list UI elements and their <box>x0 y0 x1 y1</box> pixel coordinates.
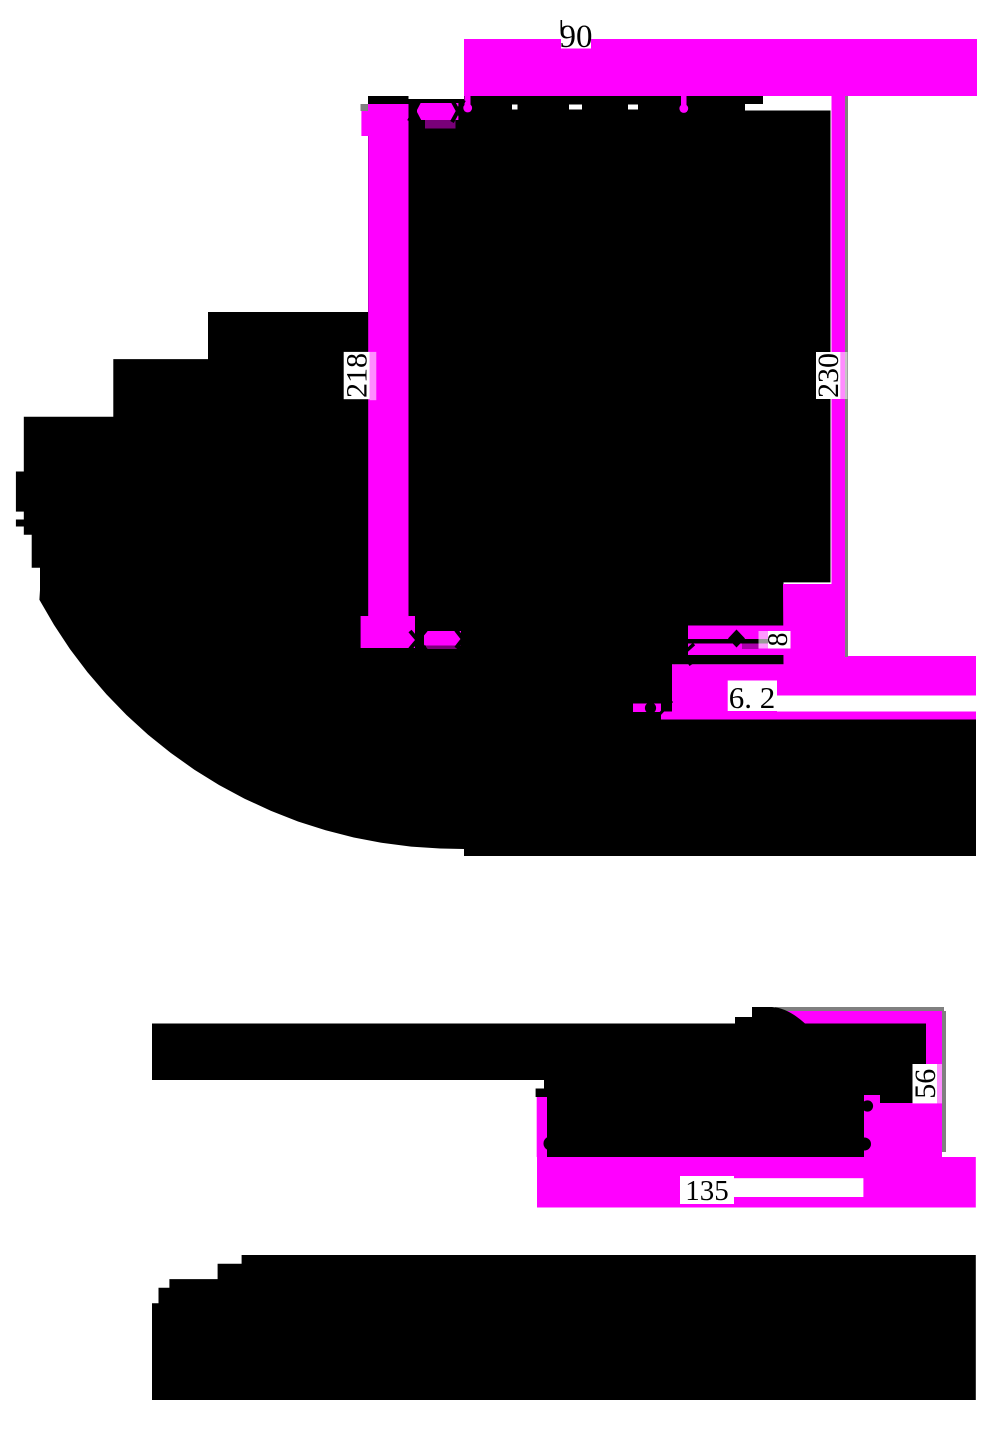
svg-text:6. 2: 6. 2 <box>729 680 776 715</box>
svg-text:90: 90 <box>560 19 593 55</box>
svg-text:230: 230 <box>812 353 845 398</box>
svg-text:8: 8 <box>763 633 794 647</box>
svg-text:218: 218 <box>341 353 374 398</box>
svg-text:135: 135 <box>685 1175 729 1207</box>
svg-text:56: 56 <box>909 1069 942 1099</box>
